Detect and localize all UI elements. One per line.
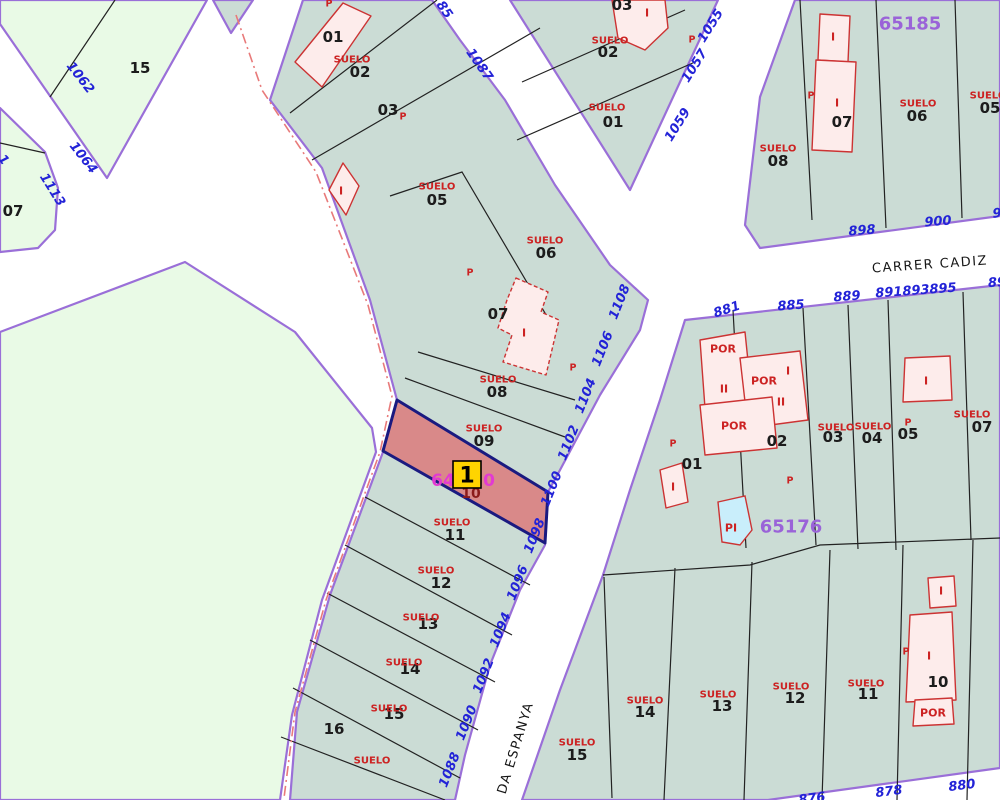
suelo-label: SUELO [354,756,391,767]
building-code-ii: II [720,383,728,396]
cadastral-map-svg: 1062106411131851087105910571055898900988… [0,0,1000,800]
road-number-898: 898 [848,223,876,240]
suelo-label: SUELO [334,55,371,66]
suelo-label: SUELO [773,682,810,693]
suelo-label: SUELO [419,182,456,193]
suelo-label: SUELO [559,738,596,749]
suelo-label: SUELO [480,375,517,386]
parcel-number-15-65176: 15 [567,746,588,764]
parcel-number-05-65185: 05 [980,99,1000,117]
parcel-number-06: 06 [536,244,557,262]
parcel-number-01-65176: 01 [682,455,703,473]
use-code-p: P [808,91,815,102]
reference-number-partial: 64 [431,471,455,491]
parcel-number-12: 12 [431,574,452,592]
building-code-i: I [835,97,839,110]
suelo-label: SUELO [700,690,737,701]
parcel-number-02-65176: 02 [767,432,788,450]
parcel-number-08: 08 [487,383,508,401]
marker-1-label: 1 [459,464,474,489]
use-code-p: P [467,268,474,279]
cadastral-map-viewport: 1062106411131851087105910571055898900988… [0,0,1000,800]
building-code-i: I [339,185,343,198]
road-number-partial-right-top: 9 [992,206,1000,222]
parcel-number-15-topleft: 15 [130,59,151,77]
road-number-900: 900 [924,214,952,231]
building-code-i: I [522,327,526,340]
road-number-partial-right: 89 [987,275,1000,291]
building-code-i: I [924,375,928,388]
parcel-number-11: 11 [445,526,466,544]
use-code-p: P [570,363,577,374]
parcel-number-10-65176: 10 [928,673,949,691]
parcel-number-08-65185: 08 [768,152,789,170]
use-code-p: P [670,439,677,450]
building-code-ii: II [777,396,785,409]
parcel-number-03: 03 [378,101,399,119]
parcel-number-06-65185: 06 [907,107,928,125]
building-code-i: I [927,650,931,663]
suelo-label: SUELO [466,424,503,435]
use-code-p: P [905,418,912,429]
parcel-number-02: 02 [350,63,371,81]
building-code-i: I [671,481,675,494]
parcel-number-16: 16 [324,720,345,738]
building-code-por: POR [721,420,747,433]
parcel-number-03-center: 03 [612,0,633,14]
parcel-number-07-topleft: 07 [3,202,24,220]
road-number-889: 889 [833,289,861,306]
parcel-number-09: 09 [474,432,495,450]
use-code-p: P [903,647,910,658]
suelo-label: SUELO [386,658,423,669]
suelo-label: SUELO [970,91,1000,102]
use-code-p: P [400,112,407,123]
suelo-label: SUELO [527,236,564,247]
zone-number-65176: 65176 [760,517,823,538]
suelo-label: SUELO [592,36,629,47]
suelo-label: SUELO [371,704,408,715]
zone-number-65185: 65185 [879,14,942,35]
suelo-label: SUELO [627,696,664,707]
use-code-p: P [326,0,333,10]
use-code-p: P [787,476,794,487]
suelo-label: SUELO [855,422,892,433]
suelo-label: SUELO [818,423,855,434]
suelo-label: SUELO [954,410,991,421]
marker-1[interactable]: 1 [453,461,481,489]
building-code-por: POR [920,707,946,720]
suelo-label: SUELO [900,99,937,110]
suelo-label: SUELO [760,144,797,155]
parcel-number-07: 07 [488,305,509,323]
suelo-label: SUELO [848,679,885,690]
parcel-number-07-65176: 07 [972,418,993,436]
building-code-i: I [831,31,835,44]
road-number-885: 885 [777,298,805,315]
parcel-number-01: 01 [323,28,344,46]
parcel-number-05: 05 [427,191,448,209]
building-code-i: I [939,585,943,598]
parcel-number-07-65185: 07 [832,113,853,131]
suelo-label: SUELO [589,103,626,114]
building-code-por: POR [751,375,777,388]
use-code-p: P [689,35,696,46]
building-code-por: POR [710,343,736,356]
building-code-i: I [786,365,790,378]
building-code-i: I [645,7,649,20]
building-code-pi: PI [725,522,737,535]
parcel-number-01-center: 01 [603,113,624,131]
suelo-label: SUELO [403,613,440,624]
suelo-label: SUELO [418,566,455,577]
reference-number-partial: 0 [483,471,495,491]
road-number-878: 878 [875,783,904,800]
suelo-label: SUELO [434,518,471,529]
